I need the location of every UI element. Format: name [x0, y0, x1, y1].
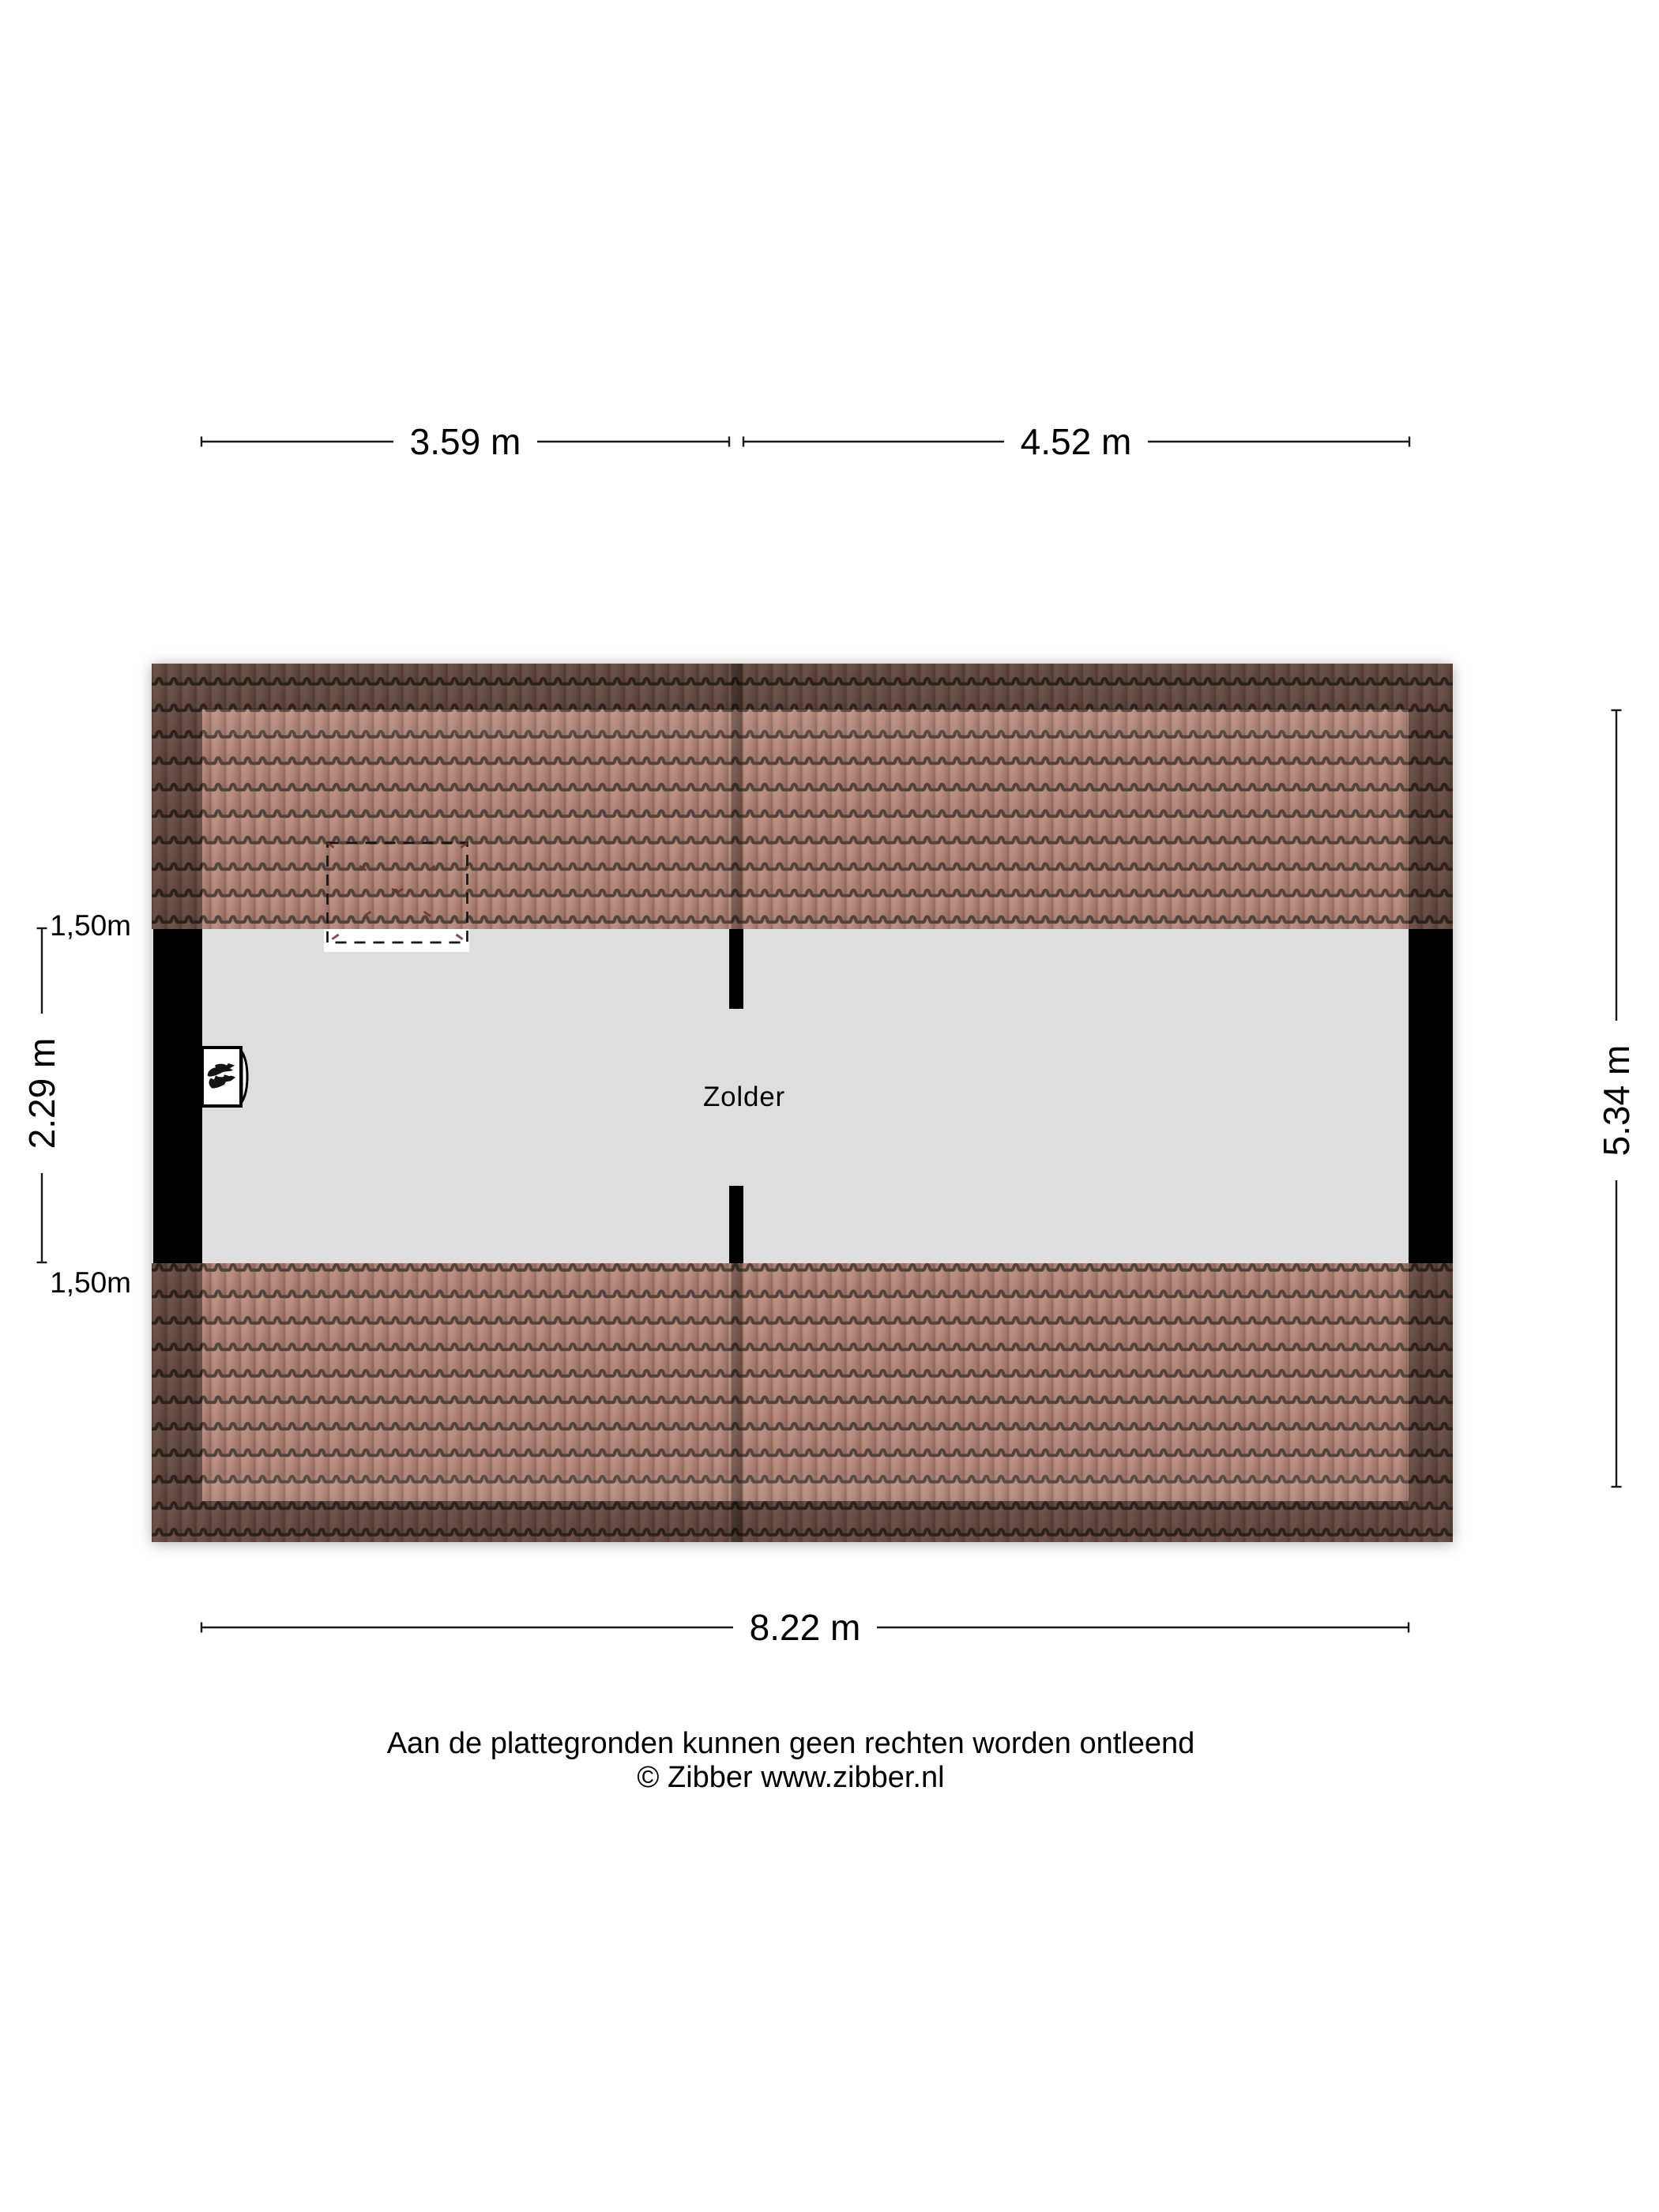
svg-text:1,50m: 1,50m	[50, 909, 131, 942]
svg-text:2.29 m: 2.29 m	[21, 1038, 62, 1149]
svg-text:3.59 m: 3.59 m	[410, 421, 521, 462]
svg-text:Zolder: Zolder	[703, 1082, 785, 1112]
svg-text:Aan de plattegronden kunnen ge: Aan de plattegronden kunnen geen rechten…	[387, 1727, 1195, 1760]
svg-text:1,50m: 1,50m	[50, 1266, 131, 1299]
svg-text:8.22 m: 8.22 m	[750, 1607, 861, 1648]
svg-text:5.34 m: 5.34 m	[1596, 1045, 1637, 1157]
svg-text:4.52 m: 4.52 m	[1021, 421, 1132, 462]
svg-text:© Zibber www.zibber.nl: © Zibber www.zibber.nl	[637, 1761, 944, 1794]
